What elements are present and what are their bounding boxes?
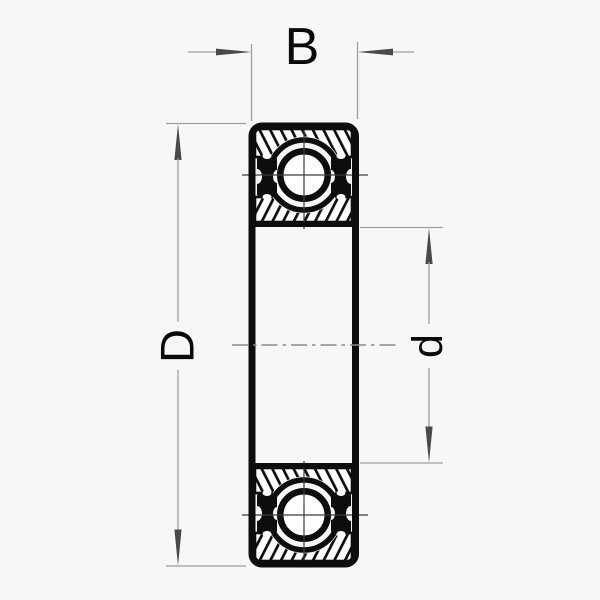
- seal-left-top: [252, 153, 281, 200]
- width-dimension: B: [188, 18, 414, 121]
- seal-notch: [337, 153, 346, 159]
- outer-diameter-dimension: D: [151, 124, 247, 567]
- seal-notch: [337, 194, 346, 200]
- arrowhead-up-icon: [425, 228, 432, 264]
- bore-diameter-label: d: [404, 334, 452, 358]
- arrowhead-left-icon: [358, 49, 394, 56]
- bearing-body: [232, 126, 397, 564]
- seal-notch: [263, 194, 272, 200]
- seal-notch: [337, 490, 346, 496]
- seal-notch: [263, 490, 272, 496]
- bottom-cross-section: [242, 461, 368, 563]
- outer-diameter-label: D: [151, 329, 204, 363]
- arrowhead-up-icon: [174, 124, 181, 160]
- bearing-drawing-canvas: B D d: [0, 0, 600, 600]
- width-label: B: [285, 18, 320, 76]
- seal-notch: [337, 531, 346, 537]
- seal-notch: [263, 153, 272, 159]
- seal-right-top: [327, 153, 356, 200]
- arrowhead-down-icon: [174, 530, 181, 566]
- top-cross-section: [242, 127, 368, 229]
- arrowhead-right-icon: [216, 49, 252, 56]
- arrowhead-down-icon: [425, 427, 432, 463]
- seal-right-bottom: [327, 490, 356, 537]
- bearing-diagram: B D d: [0, 0, 600, 600]
- seal-left-bottom: [252, 490, 281, 537]
- seal-notch: [263, 531, 272, 537]
